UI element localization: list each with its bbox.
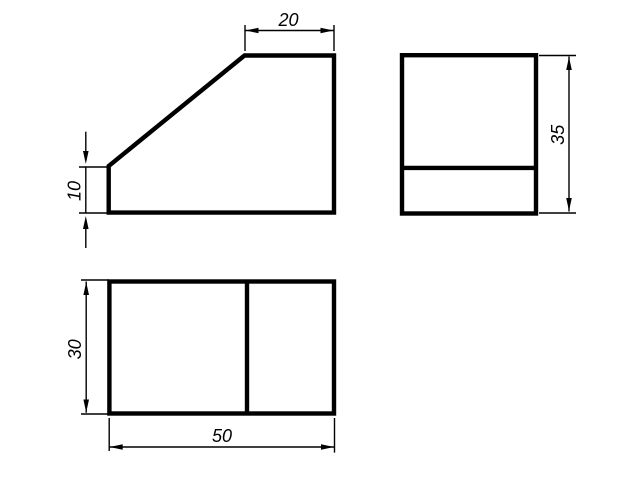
svg-text:30: 30 (65, 339, 85, 359)
svg-text:10: 10 (65, 181, 85, 201)
svg-text:35: 35 (548, 124, 568, 145)
svg-text:20: 20 (277, 10, 298, 30)
svg-text:50: 50 (212, 426, 232, 446)
